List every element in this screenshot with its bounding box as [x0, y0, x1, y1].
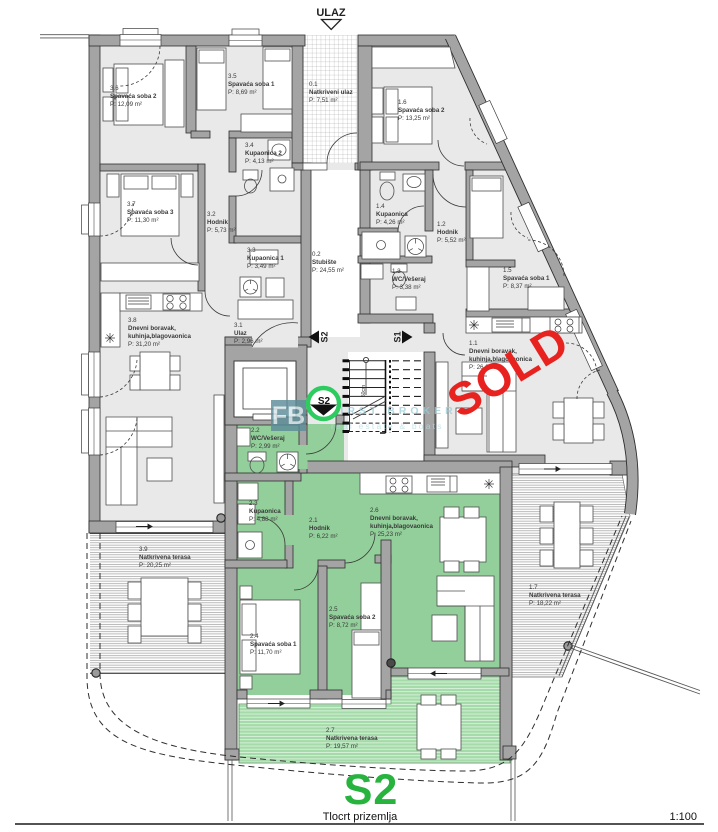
- svg-text:ULAZ: ULAZ: [316, 7, 346, 19]
- svg-text:S1: S1: [393, 331, 403, 342]
- svg-text:real estate & boats: real estate & boats: [331, 421, 444, 431]
- svg-text:FB: FB: [272, 402, 305, 430]
- svg-text:S2: S2: [344, 766, 399, 814]
- svg-text:50cm: 50cm: [361, 385, 367, 397]
- svg-text:Tlocrt prizemlja: Tlocrt prizemlja: [323, 811, 398, 823]
- svg-text:1:100: 1:100: [669, 811, 697, 823]
- svg-text:FIRST BROKER: FIRST BROKER: [330, 405, 457, 417]
- svg-text:S2: S2: [320, 331, 330, 342]
